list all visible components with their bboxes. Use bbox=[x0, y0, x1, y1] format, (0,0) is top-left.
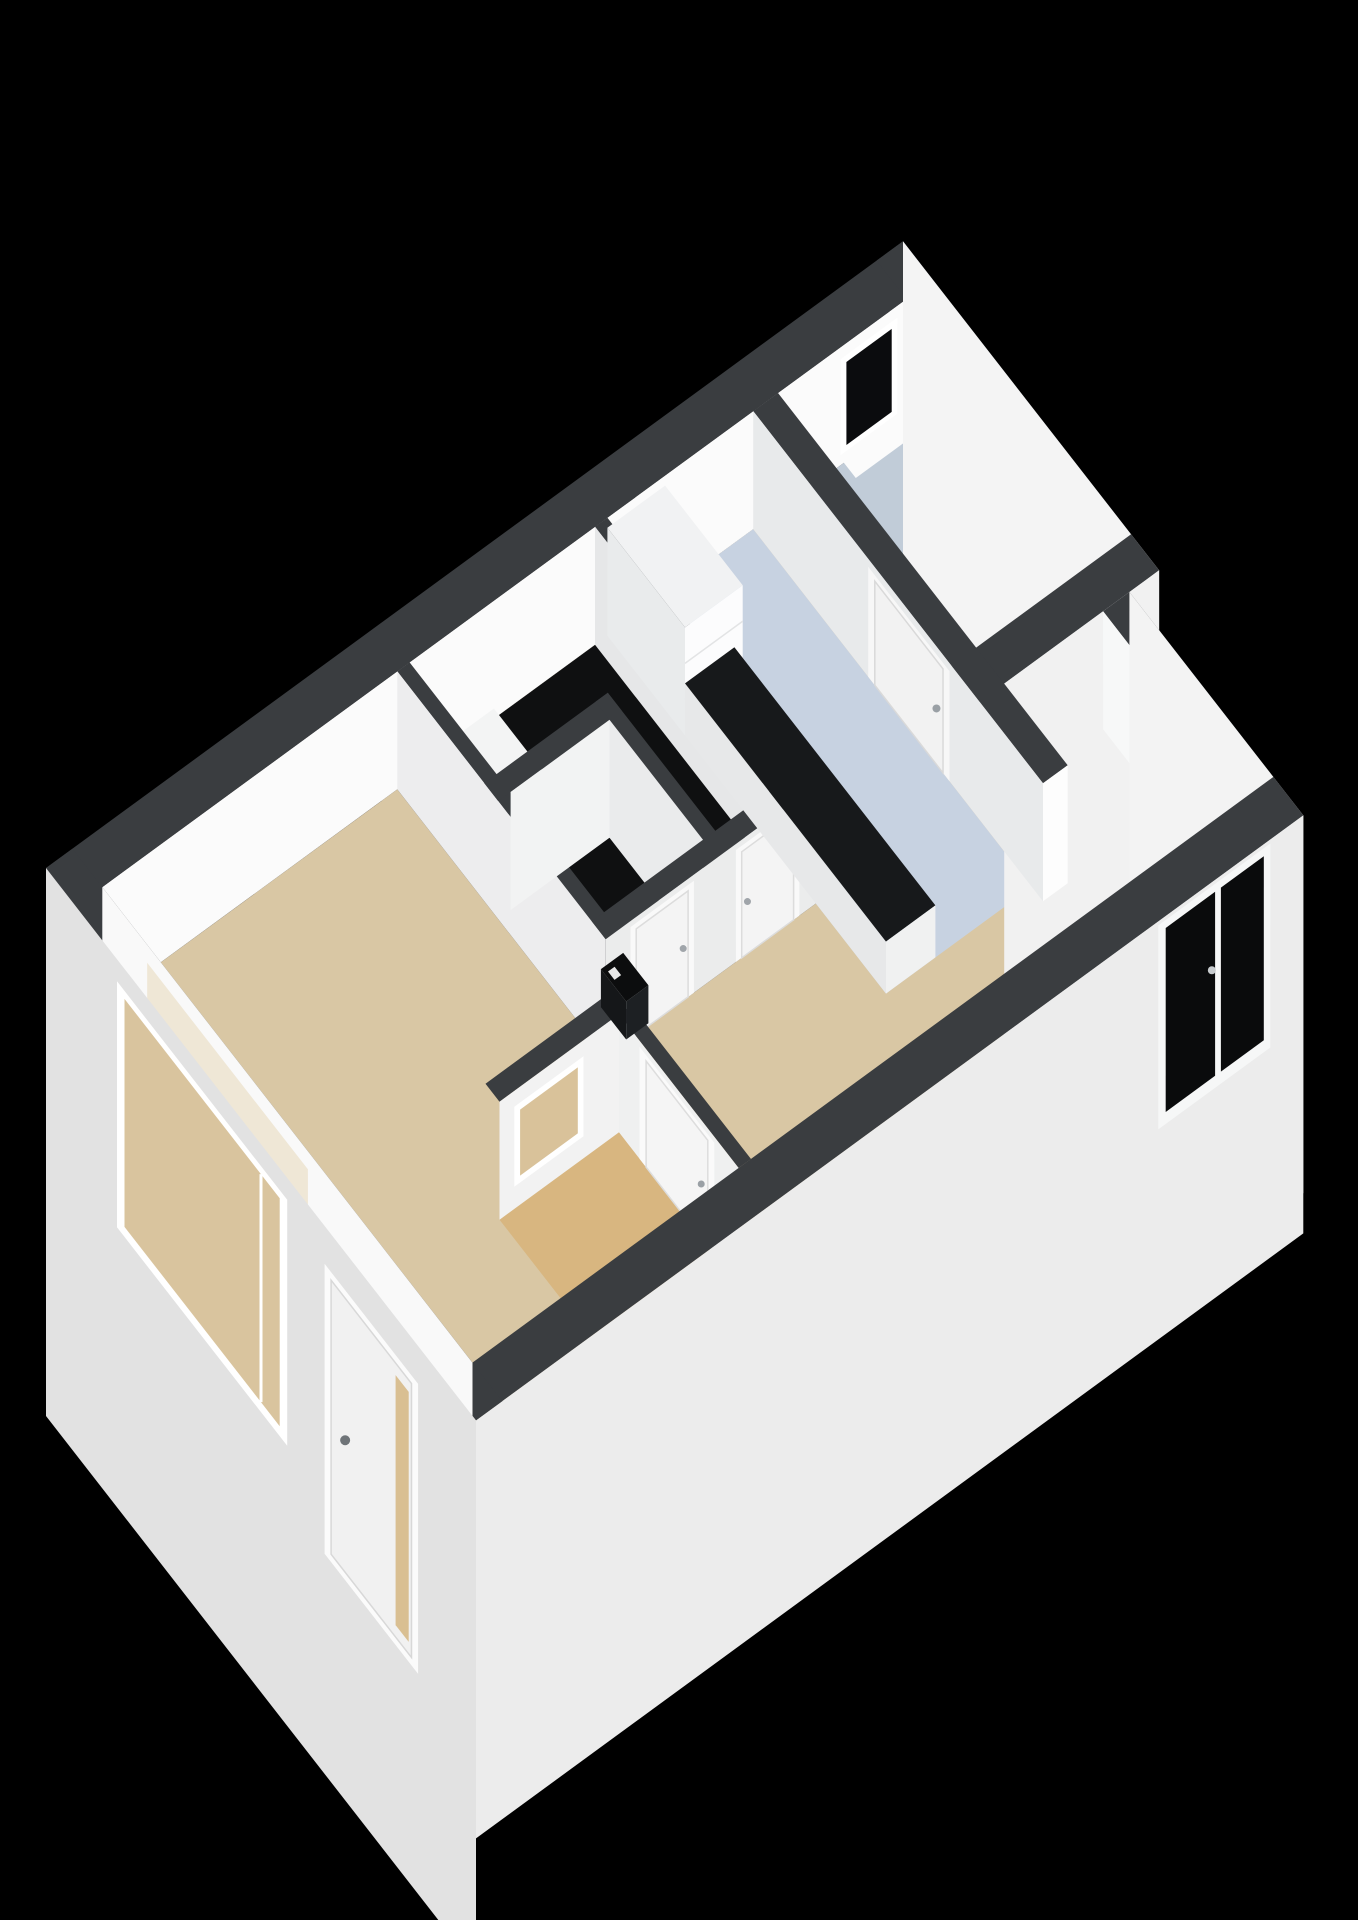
cross-wall-end-face bbox=[1043, 765, 1068, 901]
balcony-door-glass bbox=[1166, 892, 1215, 1112]
floorplan-stage bbox=[0, 0, 1358, 1920]
balcony-window-glass bbox=[1221, 856, 1264, 1071]
annex-door-handle bbox=[932, 704, 940, 712]
bathroom-door-handle bbox=[744, 898, 751, 905]
toilet-door-handle bbox=[680, 945, 687, 952]
balcony-door-handle bbox=[1208, 966, 1216, 974]
floorplan-3d-render bbox=[0, 0, 1358, 1920]
entry-door-handle bbox=[698, 1180, 705, 1187]
front-door-glazing-strip bbox=[396, 1375, 409, 1642]
front-door-handle bbox=[340, 1435, 350, 1445]
